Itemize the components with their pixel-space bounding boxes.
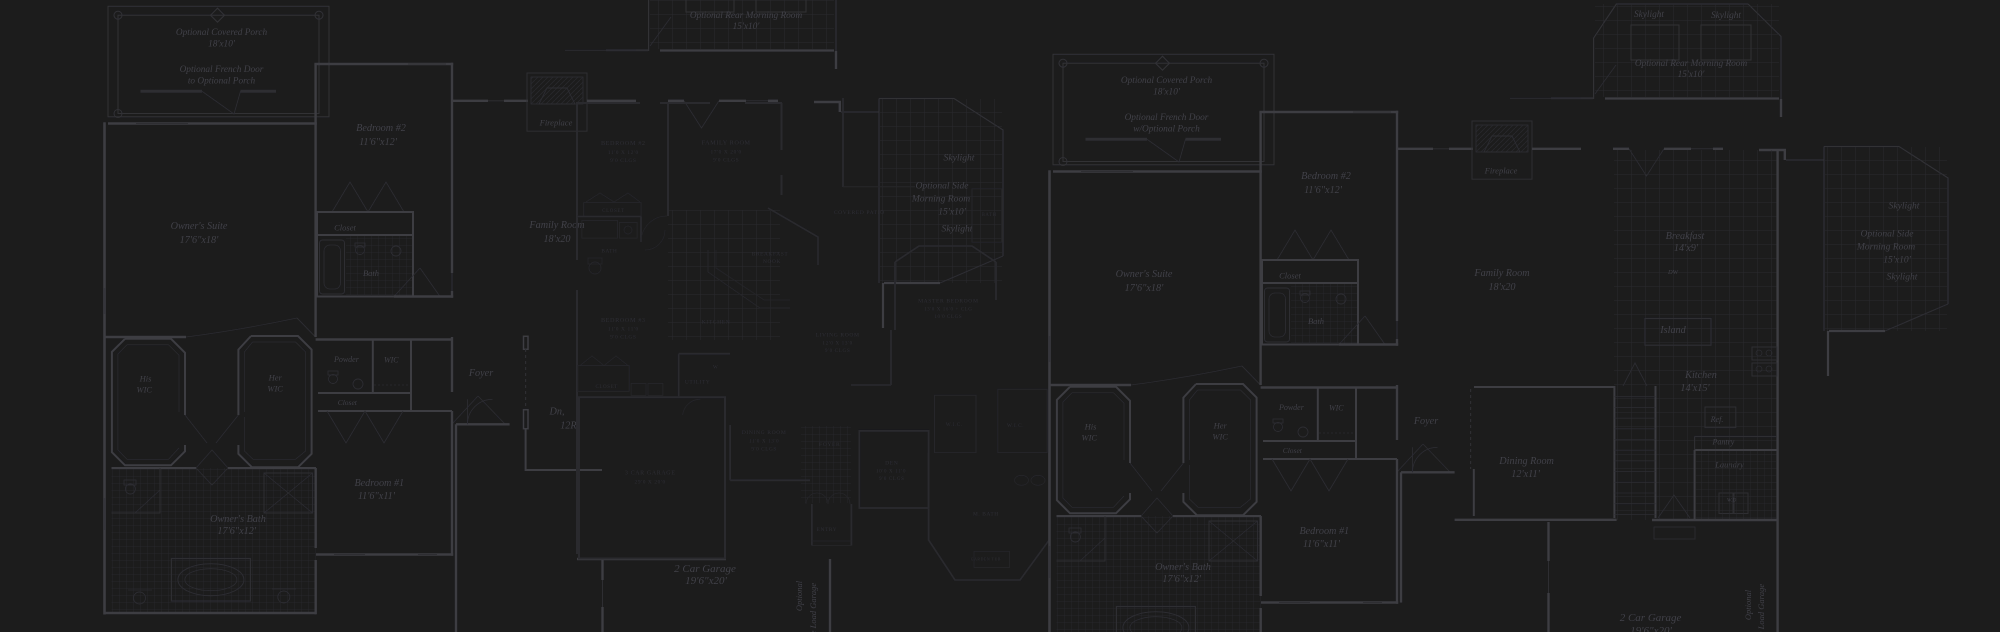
svg-text:ENTRY: ENTRY [817, 527, 838, 533]
svg-text:Pantry: Pantry [1712, 438, 1735, 447]
svg-text:Optional French Door: Optional French Door [1125, 113, 1209, 123]
svg-text:CLOSET: CLOSET [602, 209, 625, 214]
svg-text:WIC: WIC [1212, 432, 1228, 442]
svg-text:17'6"x18': 17'6"x18' [180, 235, 219, 246]
svg-text:18'x10': 18'x10' [208, 40, 236, 50]
svg-text:11'6"x11': 11'6"x11' [1303, 539, 1341, 550]
svg-text:UTILITY: UTILITY [685, 380, 710, 386]
svg-text:Bedroom #1: Bedroom #1 [1299, 526, 1349, 537]
svg-text:14'x9': 14'x9' [1674, 243, 1699, 254]
svg-text:Skylight: Skylight [1887, 272, 1918, 283]
svg-text:BATH: BATH [982, 213, 997, 218]
svg-text:9'0 CLGS: 9'0 CLGS [713, 158, 739, 164]
svg-text:LIVING ROOM: LIVING ROOM [816, 333, 860, 339]
svg-text:KITCHEN: KITCHEN [702, 320, 731, 326]
svg-text:Bath: Bath [363, 268, 379, 278]
svg-text:Side Load Garage: Side Load Garage [1756, 584, 1766, 632]
svg-text:Bedroom #2: Bedroom #2 [356, 123, 406, 134]
svg-text:Her: Her [268, 373, 283, 383]
svg-text:Owner's Bath: Owner's Bath [210, 514, 266, 525]
svg-text:9'0 CLGS: 9'0 CLGS [751, 447, 776, 453]
svg-text:Bedroom #2: Bedroom #2 [1301, 171, 1351, 182]
svg-text:2 Car Garage: 2 Car Garage [1620, 612, 1682, 624]
svg-text:17'6"x12': 17'6"x12' [1162, 574, 1201, 585]
svg-text:Optional Side: Optional Side [1860, 229, 1914, 240]
svg-text:WIC: WIC [267, 384, 283, 394]
svg-text:Powder: Powder [333, 355, 360, 364]
svg-text:9'0 CLGS: 9'0 CLGS [825, 348, 850, 354]
svg-text:Optional Covered Porch: Optional Covered Porch [1121, 76, 1213, 86]
svg-text:W: W [713, 366, 718, 371]
svg-text:Owner's Bath: Owner's Bath [1155, 562, 1211, 573]
svg-text:17'6"x12': 17'6"x12' [217, 526, 256, 537]
svg-text:Morning Room: Morning Room [1856, 242, 1915, 253]
svg-text:WIC: WIC [137, 385, 153, 395]
svg-text:13'0 X 16'0 + CLG: 13'0 X 16'0 + CLG [924, 308, 972, 313]
svg-text:Closet: Closet [334, 223, 356, 233]
svg-text:w/Optional Porch: w/Optional Porch [1133, 125, 1200, 135]
svg-text:Dn,: Dn, [549, 407, 565, 418]
svg-text:Family Room: Family Room [1473, 268, 1529, 279]
svg-text:DINING ROOM: DINING ROOM [742, 430, 787, 436]
svg-text:His: His [139, 374, 153, 384]
svg-text:18'x10': 18'x10' [1153, 88, 1181, 98]
svg-text:Bedroom #1: Bedroom #1 [354, 478, 404, 489]
svg-text:18'x20: 18'x20 [543, 234, 570, 245]
svg-text:2 Car Garage: 2 Car Garage [674, 563, 736, 575]
svg-text:19'6"x20': 19'6"x20' [1630, 625, 1672, 632]
svg-text:Fireplace: Fireplace [539, 118, 573, 128]
svg-text:11'6"x12': 11'6"x12' [359, 137, 398, 148]
svg-text:11'6"x11': 11'6"x11' [358, 491, 396, 502]
svg-text:GARDEN TUB: GARDEN TUB [971, 558, 1001, 562]
svg-text:12'0 X 13'0: 12'0 X 13'0 [822, 341, 852, 347]
svg-text:Foyer: Foyer [1413, 416, 1438, 427]
svg-text:Breakfast: Breakfast [1666, 231, 1706, 242]
svg-text:11'0 X 11'0: 11'0 X 11'0 [608, 327, 639, 333]
svg-text:9'0 CLGS: 9'0 CLGS [610, 158, 636, 164]
svg-text:BATH: BATH [601, 249, 617, 255]
svg-text:DEN: DEN [885, 461, 898, 467]
svg-text:11'0 X 12'0: 11'0 X 12'0 [608, 150, 639, 156]
svg-text:19'6"x20': 19'6"x20' [685, 575, 727, 587]
svg-text:WIC: WIC [384, 356, 399, 365]
svg-text:Fireplace: Fireplace [1484, 166, 1518, 176]
svg-text:Skylight: Skylight [1711, 11, 1741, 21]
svg-text:Skylight: Skylight [944, 153, 975, 164]
svg-text:29'0 X 20'0: 29'0 X 20'0 [635, 480, 666, 486]
svg-text:MASTER BEDROOM: MASTER BEDROOM [918, 299, 978, 305]
svg-text:Closet: Closet [1279, 271, 1301, 281]
svg-text:Kitchen: Kitchen [1684, 370, 1717, 381]
svg-text:Owner's Suite: Owner's Suite [171, 221, 228, 232]
svg-text:15'x10': 15'x10' [733, 22, 761, 32]
svg-text:Skylight: Skylight [1634, 10, 1664, 20]
svg-text:15'x10': 15'x10' [1678, 70, 1706, 80]
svg-text:15'x10': 15'x10' [1883, 255, 1911, 266]
svg-text:Optional: Optional [1743, 589, 1753, 620]
svg-text:Powder: Powder [1278, 403, 1305, 412]
svg-text:CLOSET: CLOSET [595, 385, 618, 390]
svg-text:Skylight: Skylight [1889, 201, 1920, 212]
svg-text:W.I.C.: W.I.C. [946, 422, 963, 428]
svg-text:NOOK: NOOK [763, 259, 781, 265]
svg-text:17'6"x18': 17'6"x18' [1125, 283, 1164, 294]
svg-text:DW: DW [1667, 269, 1679, 276]
svg-text:Optional Side: Optional Side [915, 181, 969, 192]
svg-text:Optional Rear Morning Room: Optional Rear Morning Room [1635, 59, 1748, 69]
svg-text:Foyer: Foyer [468, 368, 493, 379]
svg-text:Optional: Optional [794, 580, 804, 611]
svg-text:Bath: Bath [1308, 316, 1324, 326]
svg-text:Morning Room: Morning Room [911, 194, 970, 205]
svg-text:15'x10': 15'x10' [938, 207, 966, 218]
svg-text:Owner's Suite: Owner's Suite [1116, 269, 1173, 280]
svg-text:12R: 12R [560, 421, 577, 432]
svg-text:BREAKFAST: BREAKFAST [752, 252, 789, 258]
svg-text:Closet: Closet [1283, 446, 1303, 455]
svg-text:10'0 CLGS: 10'0 CLGS [934, 315, 962, 320]
svg-text:Dining Room: Dining Room [1498, 456, 1554, 467]
svg-text:to Optional Porch: to Optional Porch [188, 77, 256, 87]
svg-text:Her: Her [1213, 421, 1228, 431]
svg-text:Skylight: Skylight [942, 224, 973, 235]
svg-text:18'x20: 18'x20 [1488, 282, 1515, 293]
svg-text:Optional French Door: Optional French Door [180, 65, 264, 75]
svg-text:3 CAR GARAGE: 3 CAR GARAGE [625, 471, 676, 477]
svg-text:Optional Rear Morning Room: Optional Rear Morning Room [690, 11, 803, 21]
svg-text:M. BATH: M. BATH [973, 512, 999, 518]
svg-text:His: His [1084, 422, 1098, 432]
svg-text:12'x11': 12'x11' [1511, 469, 1540, 480]
svg-text:Optional Covered Porch: Optional Covered Porch [176, 28, 268, 38]
svg-text:11'0 X 13'0: 11'0 X 13'0 [749, 439, 779, 445]
svg-text:Ref.: Ref. [1710, 415, 1724, 424]
svg-text:9'0 CLGS: 9'0 CLGS [879, 476, 904, 482]
svg-text:WIC: WIC [1329, 404, 1344, 413]
svg-text:BEDROOM #2: BEDROOM #2 [601, 140, 646, 147]
svg-text:17'0 X 20'0: 17'0 X 20'0 [710, 150, 741, 156]
svg-text:Island: Island [1659, 325, 1686, 336]
svg-text:W.I.C.: W.I.C. [1007, 423, 1024, 429]
svg-text:WIC: WIC [1082, 433, 1098, 443]
svg-text:11'6"x12': 11'6"x12' [1304, 185, 1343, 196]
svg-text:Closet: Closet [338, 398, 358, 407]
svg-text:10'0 X 11'0: 10'0 X 11'0 [876, 469, 906, 475]
svg-text:Side Load Garage: Side Load Garage [808, 583, 818, 632]
svg-text:FOYER: FOYER [819, 442, 840, 448]
svg-text:COVERED PATIO: COVERED PATIO [834, 210, 885, 216]
svg-text:9'0 CLGS: 9'0 CLGS [610, 335, 636, 341]
svg-text:FAMILY ROOM: FAMILY ROOM [702, 140, 751, 147]
svg-text:14'x15': 14'x15' [1680, 383, 1710, 394]
svg-text:BEDROOM #3: BEDROOM #3 [601, 317, 646, 324]
